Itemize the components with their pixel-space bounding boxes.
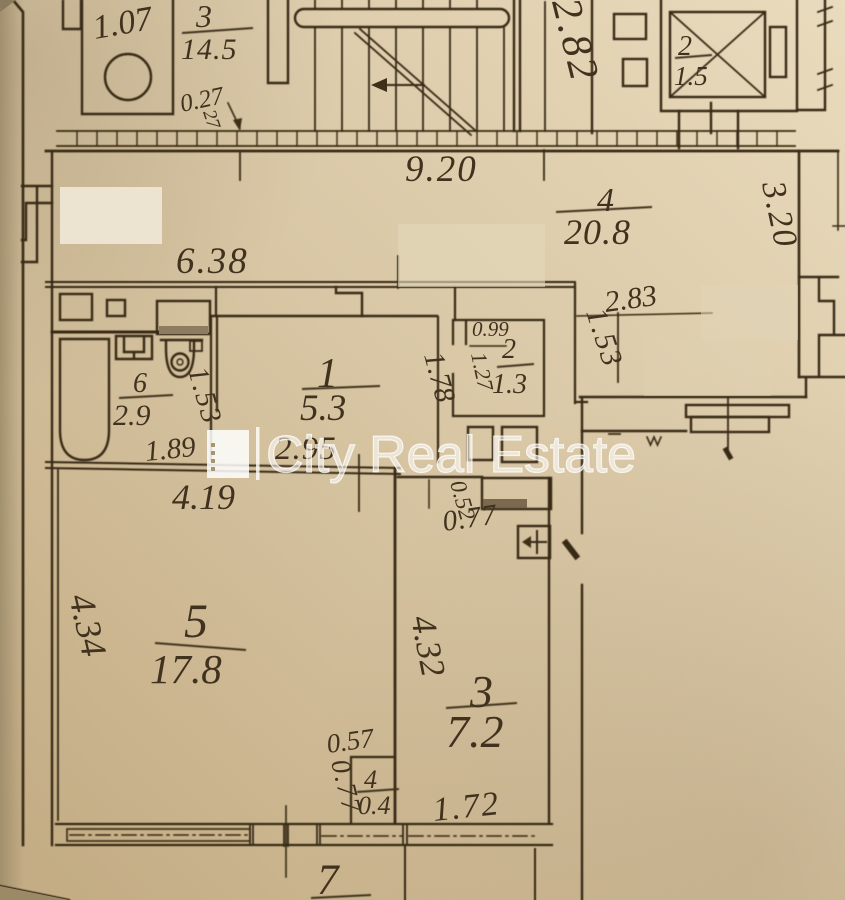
svg-text:3: 3 [195, 0, 212, 34]
svg-text:1.5: 1.5 [674, 61, 708, 91]
svg-text:0.4: 0.4 [358, 791, 391, 820]
svg-text:7: 7 [317, 857, 340, 900]
svg-text:6.38: 6.38 [176, 241, 249, 282]
svg-text:5.3: 5.3 [300, 388, 346, 429]
svg-text:14.5: 14.5 [181, 33, 238, 66]
svg-text:9.20: 9.20 [405, 149, 478, 190]
svg-text:20.8: 20.8 [564, 212, 631, 252]
svg-text:4: 4 [364, 765, 377, 794]
svg-text:1.89: 1.89 [143, 431, 197, 468]
svg-text:2.9: 2.9 [113, 399, 151, 432]
svg-text:5: 5 [184, 595, 208, 648]
svg-text:0.99: 0.99 [472, 317, 509, 341]
svg-text:1.72: 1.72 [431, 785, 502, 829]
svg-text:7.2: 7.2 [446, 706, 504, 757]
svg-text:City Real Estate: City Real Estate [266, 426, 636, 484]
svg-text:6: 6 [133, 368, 147, 399]
svg-text:17.8: 17.8 [150, 646, 222, 692]
svg-text:4.19: 4.19 [172, 477, 235, 517]
